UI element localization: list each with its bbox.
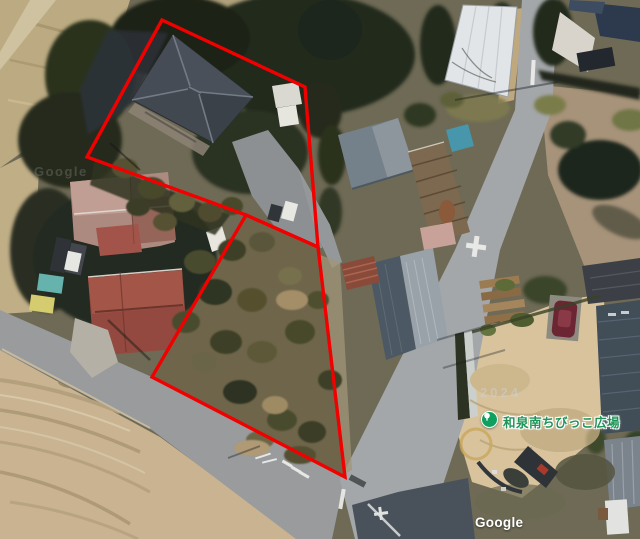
garage-roof xyxy=(272,82,302,108)
yellow-car xyxy=(29,294,55,313)
park-label[interactable]: 和泉南ちびっこ広場 xyxy=(503,412,620,431)
tile-watermark: Google xyxy=(34,164,88,179)
park-marker[interactable] xyxy=(481,411,498,428)
google-logo[interactable]: Google xyxy=(475,515,523,530)
teal-car xyxy=(37,273,64,293)
white-vehicle xyxy=(277,105,299,127)
tree-icon xyxy=(482,412,492,422)
imagery-year-watermark: 2024 xyxy=(480,385,521,400)
aerial-imagery[interactable] xyxy=(0,0,640,539)
map-viewport[interactable]: 和泉南ちびっこ広場 Google 2024 Google xyxy=(0,0,640,539)
